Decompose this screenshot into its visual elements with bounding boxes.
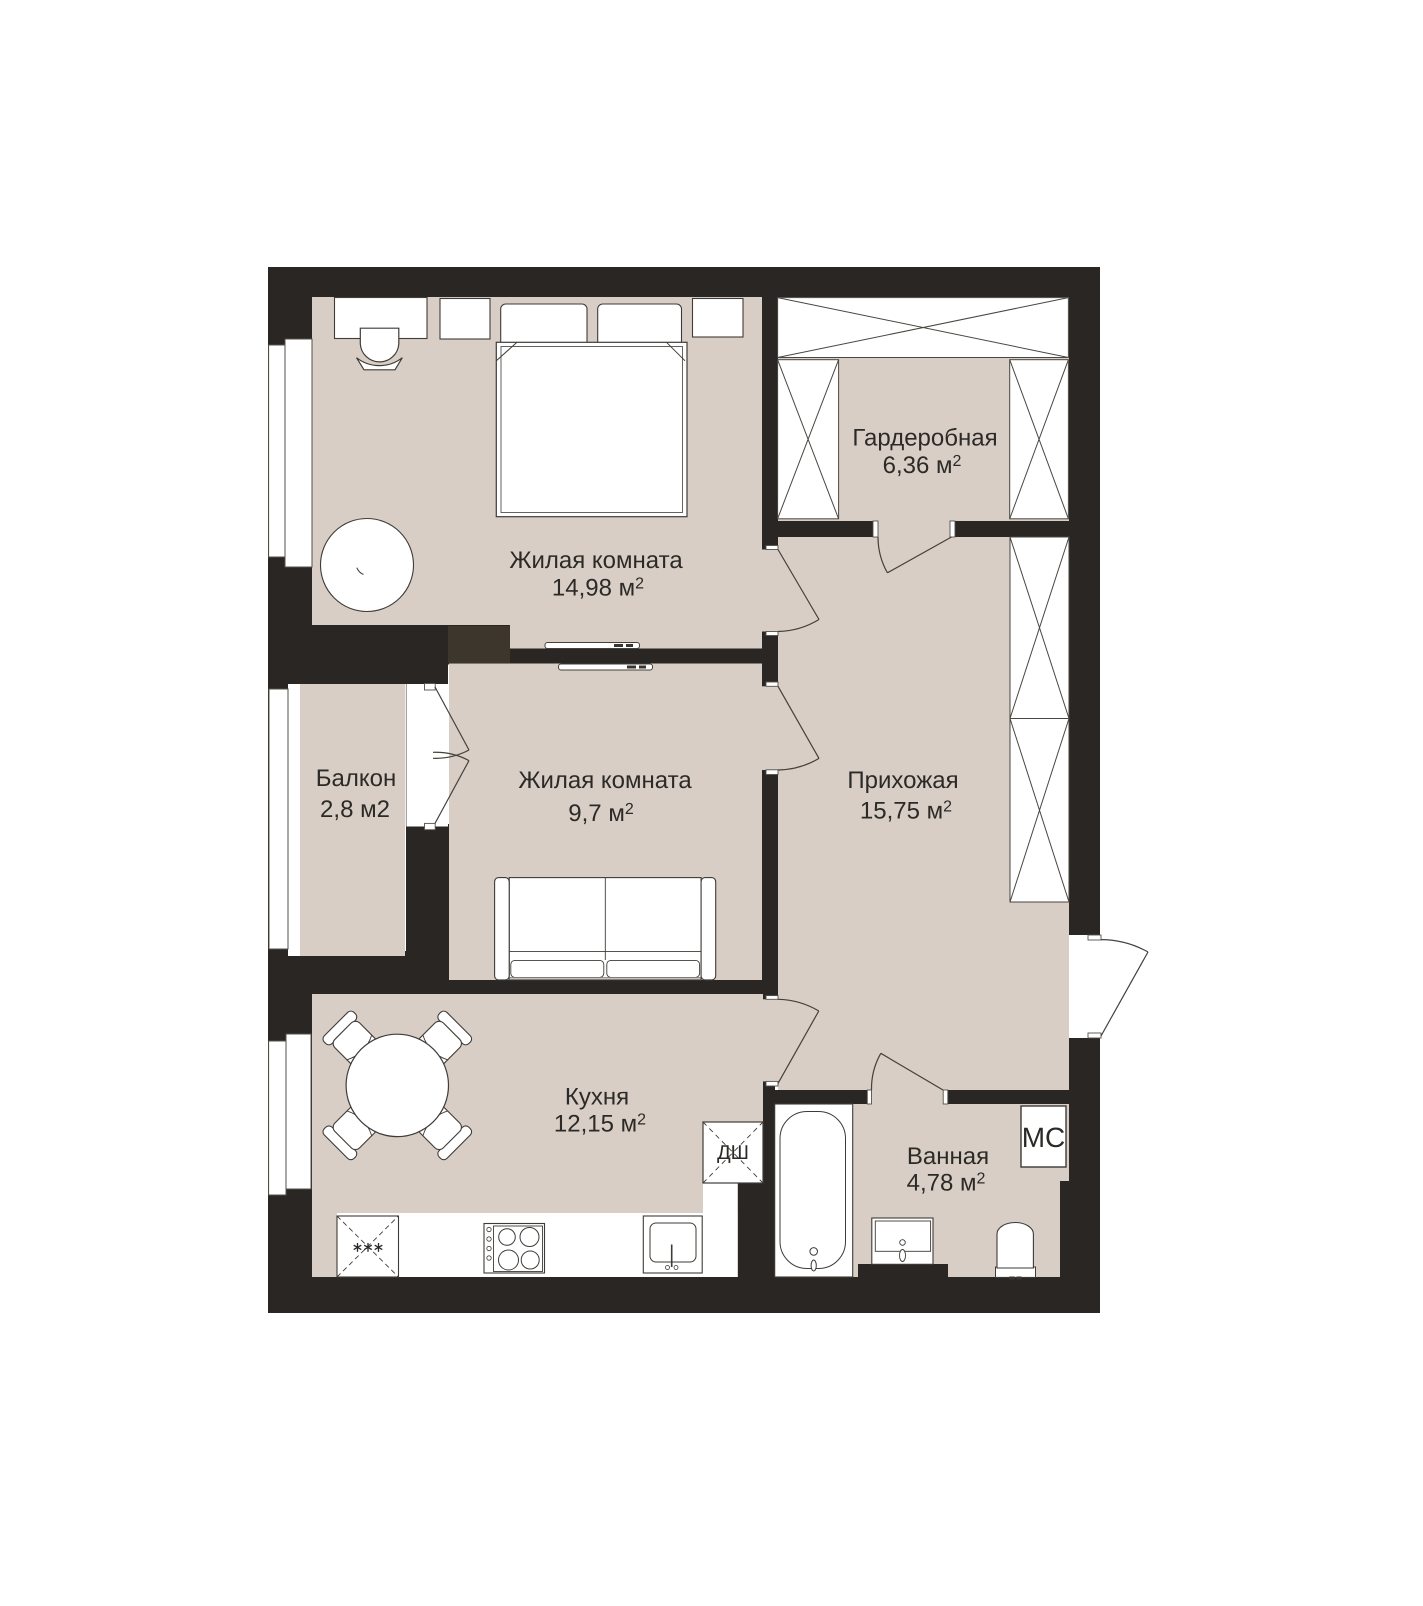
svg-text:6,36 м2: 6,36 м2 — [883, 452, 962, 479]
svg-text:Жилая комната: Жилая комната — [509, 547, 683, 574]
svg-text:14,98 м2: 14,98 м2 — [552, 575, 644, 602]
svg-text:2,8 м2: 2,8 м2 — [320, 796, 390, 823]
svg-text:12,15 м2: 12,15 м2 — [554, 1111, 646, 1138]
svg-text:Прихожая: Прихожая — [847, 767, 958, 794]
svg-text:4,78 м2: 4,78 м2 — [907, 1170, 986, 1197]
svg-text:Жилая комната: Жилая комната — [518, 767, 692, 794]
svg-text:ДШ: ДШ — [717, 1142, 749, 1164]
svg-text:МС: МС — [1022, 1122, 1066, 1153]
svg-text:Ванная: Ванная — [907, 1143, 989, 1170]
svg-text:Кухня: Кухня — [565, 1083, 629, 1110]
svg-text:15,75 м2: 15,75 м2 — [860, 798, 952, 825]
svg-text:9,7 м2: 9,7 м2 — [568, 800, 634, 827]
svg-text:Балкон: Балкон — [316, 765, 396, 792]
svg-text:Гардеробная: Гардеробная — [852, 425, 997, 452]
